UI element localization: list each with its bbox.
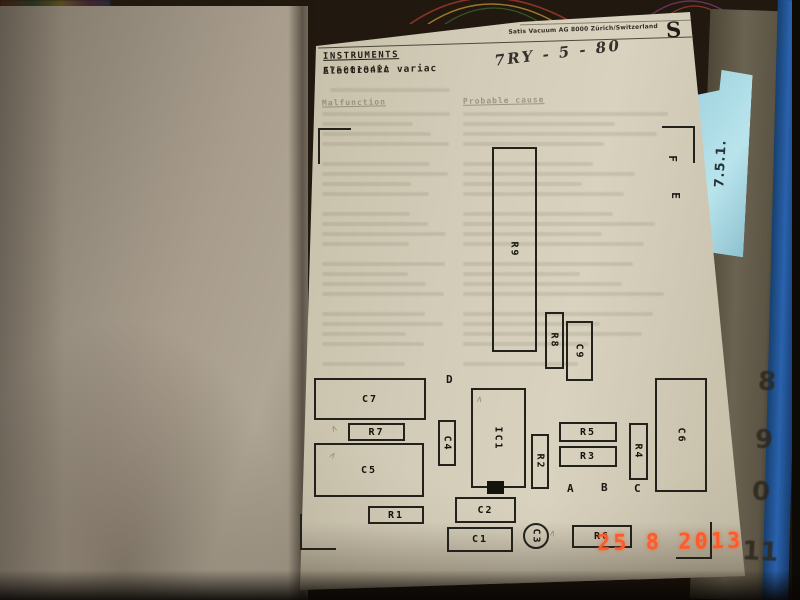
- component-c3: C3: [523, 523, 549, 549]
- component-label: C7: [362, 394, 378, 405]
- component-r8: R8: [545, 312, 564, 369]
- component-label: C6: [675, 427, 686, 443]
- component-label: C1: [472, 534, 488, 545]
- component-r5: R5: [559, 422, 617, 442]
- component-c7: C7: [314, 378, 426, 420]
- component-label: C3: [530, 528, 541, 544]
- component-r7: R7: [348, 423, 405, 441]
- component-label: R1: [388, 510, 404, 521]
- component-label: R2: [535, 453, 546, 469]
- component-c5: C5: [314, 443, 424, 497]
- component-c1: C1: [447, 527, 513, 552]
- diagram-components: R9R8C9C7R7C5R1C4IC1R2R5R3R4C6C2C1R6C3: [0, 0, 800, 600]
- component-r9: R9: [492, 147, 537, 352]
- camera-date-stamp: 25 8 2013: [597, 529, 744, 557]
- component-label: R8: [549, 332, 560, 348]
- ic1-solder-pad: [487, 481, 504, 494]
- component-label: R5: [580, 427, 596, 438]
- photo-of-manual-page: 89011 7.5.1. Satis Vacuum AG 8000 Zürich…: [0, 0, 800, 600]
- component-label: C9: [574, 343, 585, 359]
- component-r2: R2: [531, 434, 549, 489]
- component-label: IC1: [493, 426, 504, 450]
- component-label: R4: [633, 443, 644, 459]
- component-label: R7: [368, 427, 384, 438]
- component-c2: C2: [455, 497, 516, 523]
- component-label: C2: [477, 505, 493, 516]
- component-r4: R4: [629, 423, 648, 480]
- component-ic1: IC1: [471, 388, 526, 488]
- component-label: C5: [361, 465, 377, 476]
- component-c4: C4: [438, 420, 456, 466]
- component-r3: R3: [559, 446, 617, 467]
- component-r1: R1: [368, 506, 424, 524]
- component-label: R3: [580, 451, 596, 462]
- component-label: C4: [442, 435, 453, 451]
- component-c9: C9: [566, 321, 593, 381]
- component-label: R9: [509, 241, 520, 257]
- component-c6: C6: [655, 378, 707, 492]
